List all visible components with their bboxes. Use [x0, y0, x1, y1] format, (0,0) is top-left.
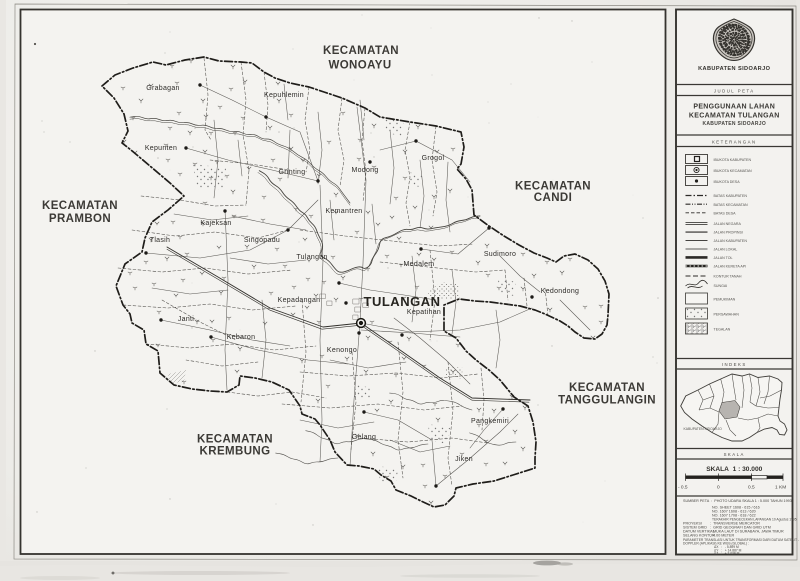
- svg-text:TANGGULANGIN: TANGGULANGIN: [558, 395, 656, 407]
- svg-text:Tlasih: Tlasih: [150, 237, 170, 244]
- svg-text:KECAMATAN TULANGAN: KECAMATAN TULANGAN: [689, 113, 780, 120]
- svg-text:Kepatihan: Kepatihan: [407, 309, 441, 316]
- svg-text:BATAS DESA: BATAS DESA: [714, 211, 737, 215]
- svg-text:KETERANGAN: KETERANGAN: [712, 139, 757, 144]
- svg-text:BATAS KABUPATEN: BATAS KABUPATEN: [714, 194, 748, 198]
- svg-text:- 0.5: - 0.5: [678, 485, 688, 491]
- svg-text:JALAN TOL: JALAN TOL: [714, 256, 733, 260]
- svg-text:TEGALAN: TEGALAN: [714, 328, 731, 332]
- svg-text:Kebaron: Kebaron: [227, 334, 256, 341]
- svg-text:KABUPATEN SIDOARJO: KABUPATEN SIDOARJO: [684, 427, 723, 431]
- svg-text:KREMBUNG: KREMBUNG: [200, 446, 271, 458]
- svg-text:Singopadu: Singopadu: [244, 237, 280, 244]
- svg-text:JALAN LOKAL: JALAN LOKAL: [714, 248, 738, 252]
- svg-text:IBUKOTA KABUPATEN: IBUKOTA KABUPATEN: [714, 158, 752, 162]
- svg-text:PEMUKIMAN: PEMUKIMAN: [714, 298, 736, 302]
- svg-text:JALAN NEGARA: JALAN NEGARA: [714, 222, 742, 226]
- svg-text:SUNGAI: SUNGAI: [714, 284, 728, 288]
- svg-text:Sudimoro: Sudimoro: [484, 251, 516, 258]
- svg-text:Grabagan: Grabagan: [146, 85, 180, 92]
- svg-text:SKALA: SKALA: [724, 452, 745, 457]
- svg-text:Modong: Modong: [351, 167, 378, 174]
- svg-text:Janti: Janti: [178, 316, 194, 323]
- svg-text:WONOAYU: WONOAYU: [328, 60, 391, 72]
- svg-text:Medalem: Medalem: [404, 261, 435, 268]
- svg-text:Gelang: Gelang: [352, 434, 376, 441]
- svg-text:ΔZ : + 2.039 M: ΔZ : + 2.039 M: [714, 551, 740, 555]
- svg-text:TULANGAN: TULANGAN: [364, 294, 441, 309]
- svg-text:JUDUL PETA: JUDUL PETA: [714, 88, 755, 93]
- svg-text:Kepadangan: Kepadangan: [278, 297, 321, 304]
- svg-text:JALAN KABUPATEN: JALAN KABUPATEN: [714, 239, 748, 243]
- svg-text:BATAS KECAMATAN: BATAS KECAMATAN: [714, 203, 748, 207]
- svg-text:Tulangan: Tulangan: [296, 254, 327, 261]
- svg-text:PENGGUNAAN LAHAN: PENGGUNAAN LAHAN: [693, 104, 775, 111]
- svg-text:KABUPATEN SIDOARJO: KABUPATEN SIDOARJO: [698, 66, 771, 72]
- svg-text:Kepuhlemin: Kepuhlemin: [264, 92, 304, 99]
- svg-text:IBUKOTA KECAMATAN: IBUKOTA KECAMATAN: [714, 169, 753, 173]
- svg-text:KECAMATAN: KECAMATAN: [42, 200, 118, 212]
- svg-text:PRAMBON: PRAMBON: [49, 213, 111, 225]
- svg-text:Kajeksan: Kajeksan: [200, 220, 231, 227]
- svg-text:JALAN PROPINSI: JALAN PROPINSI: [714, 231, 743, 235]
- svg-text:PERSAWAHAN: PERSAWAHAN: [714, 313, 740, 317]
- svg-text:0.5: 0.5: [748, 485, 755, 491]
- svg-text:1 KM: 1 KM: [775, 485, 786, 491]
- svg-text:0: 0: [717, 485, 720, 491]
- svg-text:: 4.00 METER: : 4.00 METER: [710, 534, 735, 538]
- svg-text:Kedondong: Kedondong: [541, 288, 580, 295]
- svg-text:INDEKS: INDEKS: [722, 362, 747, 367]
- svg-text:CANDI: CANDI: [534, 192, 572, 204]
- svg-text:Jiken: Jiken: [455, 456, 473, 463]
- svg-text:Kemantren: Kemantren: [326, 208, 363, 215]
- svg-text:KONTUR TANAH: KONTUR TANAH: [714, 275, 742, 279]
- svg-text:KECAMATAN: KECAMATAN: [569, 382, 645, 394]
- svg-text:Grogol: Grogol: [422, 155, 445, 162]
- svg-text:JALAN KERETA API: JALAN KERETA API: [714, 265, 747, 269]
- svg-text:KABUPATEN SIDOARJO: KABUPATEN SIDOARJO: [702, 121, 766, 127]
- svg-text:Pangkemiri: Pangkemiri: [471, 418, 509, 425]
- svg-text:SUMBER PETA : PHOTO UDARA SK: SUMBER PETA : PHOTO UDARA SKALA 1 : 5.00…: [683, 499, 792, 503]
- svg-text:SKALA 1 : 30.000: SKALA 1 : 30.000: [706, 466, 762, 473]
- svg-text:Kenongo: Kenongo: [327, 347, 357, 354]
- svg-text:KECAMATAN: KECAMATAN: [323, 45, 399, 57]
- svg-text:KECAMATAN: KECAMATAN: [515, 181, 591, 193]
- svg-text:Kepunten: Kepunten: [145, 145, 177, 152]
- svg-text:KECAMATAN: KECAMATAN: [197, 434, 273, 446]
- svg-text:IBUKOTA DESA: IBUKOTA DESA: [714, 180, 741, 184]
- svg-text:Grinting: Grinting: [279, 169, 306, 176]
